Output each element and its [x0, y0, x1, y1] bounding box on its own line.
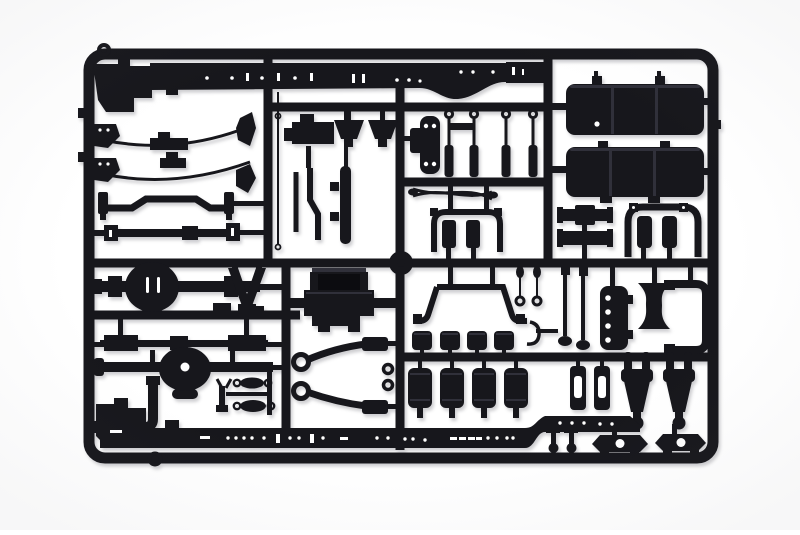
- steering-knuckle-fork-2: [663, 352, 695, 430]
- pendant-rod-2: [533, 266, 541, 305]
- shock-absorbers: [445, 110, 538, 177]
- funnel-mount-1: [334, 107, 364, 147]
- bracket-cluster: [284, 114, 334, 144]
- lever-rod-1: [558, 266, 572, 346]
- photo-stage: [0, 0, 800, 530]
- small-fork-pin-2: [564, 428, 578, 453]
- slot-brackets: [570, 358, 610, 410]
- bent-strip-parts: [296, 146, 318, 240]
- engine-block: [282, 268, 404, 332]
- corner-mount-block-top: [93, 56, 152, 112]
- tie-rod-dumbbell-1: [234, 378, 271, 389]
- anti-roll-bar: [98, 192, 266, 220]
- small-rings: [384, 365, 393, 390]
- funnel-mount-2: [368, 107, 398, 147]
- mounting-plate-with-holes-right: [600, 267, 633, 350]
- air-reservoirs-large: [408, 361, 528, 418]
- stabilizer-link-2: [294, 384, 399, 415]
- drive-shaft: [89, 223, 268, 241]
- bumper-bar-2: [557, 221, 613, 263]
- sprue-drawing: [0, 0, 800, 530]
- hook-pipe: [527, 322, 558, 344]
- x-crossmember: [638, 267, 670, 329]
- front-axle-with-hub: [94, 347, 286, 399]
- small-fork-pin-1: [546, 428, 560, 453]
- leaf-spring-2: [94, 152, 256, 193]
- leaf-spring-1: [94, 112, 256, 150]
- antenna-rod: [276, 92, 281, 250]
- stabilizer-link-1: [294, 337, 399, 370]
- c-bracket: [664, 267, 706, 354]
- sprue-photo: [0, 0, 800, 535]
- cab-mount-frame: [413, 267, 527, 324]
- mounting-plate-with-holes-left: [420, 116, 440, 174]
- lever-rod-2: [576, 266, 590, 350]
- ladder-bar: [89, 319, 286, 351]
- fuel-tank-1: [548, 71, 714, 135]
- fuel-tank-2: [548, 141, 714, 203]
- u-bracket-with-cylinders-right: [628, 203, 698, 260]
- pendant-rod-1: [516, 266, 524, 305]
